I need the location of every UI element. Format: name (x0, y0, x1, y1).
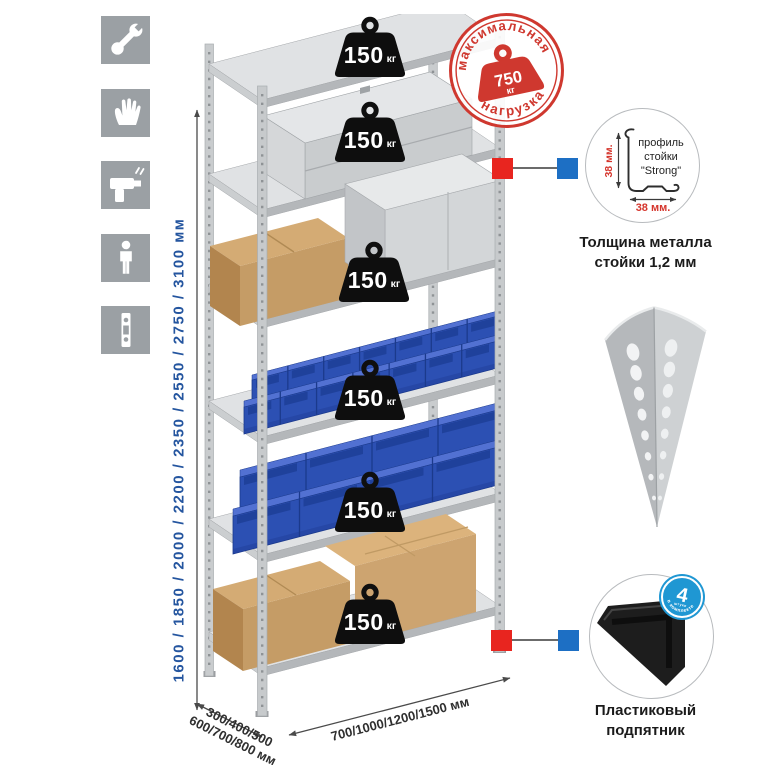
product-infographic: 1600 / 1850 / 2000 / 2200 / 2350 / 2550 … (0, 0, 765, 765)
wrench-icon (101, 16, 150, 64)
post-profile-drawing: 38 мм. 38 мм. профиль стойки "Strong" (586, 109, 698, 221)
shelf-load-unit: кг (387, 396, 397, 408)
shelf-load-value: 150 (348, 267, 388, 294)
profile-dim-horizontal: 38 мм. (636, 202, 671, 214)
foot-caption-line1: Пластиковый (563, 701, 728, 721)
shelf-load-value: 150 (344, 42, 384, 69)
profile-label-2: стойки (644, 151, 678, 163)
profile-strip-icon-glyph (102, 306, 150, 354)
height-options-label: 1600 / 1850 / 2000 / 2200 / 2350 / 2550 … (171, 218, 188, 683)
shelf-load-badge: 150кг (332, 471, 408, 535)
gloves-icon (101, 89, 150, 137)
profile-label-1: профиль (638, 137, 684, 149)
kit-quantity-badge: 4 штуки в комплекте (661, 576, 703, 618)
gloves-icon-glyph (102, 89, 150, 137)
max-load-stamp: 750 кг максимальная нагрузка (447, 11, 566, 130)
profile-caption-line1: Толщина металла (563, 233, 728, 253)
person-height-icon (101, 234, 150, 282)
shelf-load-badge: 150кг (332, 359, 408, 423)
angle-post-image (597, 298, 715, 533)
shelf-load-value: 150 (344, 385, 384, 412)
profile-callout-marker-blue (557, 158, 578, 179)
shelf-load-value: 150 (344, 609, 384, 636)
foot-callout-marker-red (491, 630, 512, 651)
foot-callout-marker-blue (558, 630, 579, 651)
shelf-load-value: 150 (344, 497, 384, 524)
profile-caption: Толщина металла стойки 1,2 мм (563, 233, 728, 273)
profile-callout-marker-red (492, 158, 513, 179)
drill-icon (101, 161, 150, 209)
profile-caption-line2: стойки 1,2 мм (563, 253, 728, 273)
person-icon-glyph (102, 234, 150, 282)
shelf-load-unit: кг (387, 53, 397, 65)
kit-quantity-badge-graphic: 4 штуки в комплекте (663, 578, 701, 616)
shelf-load-unit: кг (391, 278, 401, 290)
shelf-load-unit: кг (387, 620, 397, 632)
profile-dim-vertical: 38 мм. (603, 144, 615, 177)
shelf-load-unit: кг (387, 138, 397, 150)
shelf-load-badge: 150кг (336, 241, 412, 305)
profile-callout-line (512, 167, 558, 169)
drill-icon-glyph (102, 161, 150, 209)
profile-label-3: "Strong" (641, 165, 681, 177)
foot-caption: Пластиковый подпятник (563, 701, 728, 741)
shelf-load-badge: 150кг (332, 583, 408, 647)
shelf-load-badge: 150кг (332, 16, 408, 80)
wrench-icon-glyph (102, 16, 150, 64)
foot-callout-line (511, 639, 559, 641)
foot-caption-line2: подпятник (563, 721, 728, 741)
shelf-load-badge: 150кг (332, 101, 408, 165)
shelf-load-unit: кг (387, 508, 397, 520)
max-load-stamp-graphic: 750 кг максимальная нагрузка (447, 11, 566, 130)
shelf-load-value: 150 (344, 127, 384, 154)
post-profile-detail: 38 мм. 38 мм. профиль стойки "Strong" (585, 108, 700, 223)
perforated-profile-icon (101, 306, 150, 354)
